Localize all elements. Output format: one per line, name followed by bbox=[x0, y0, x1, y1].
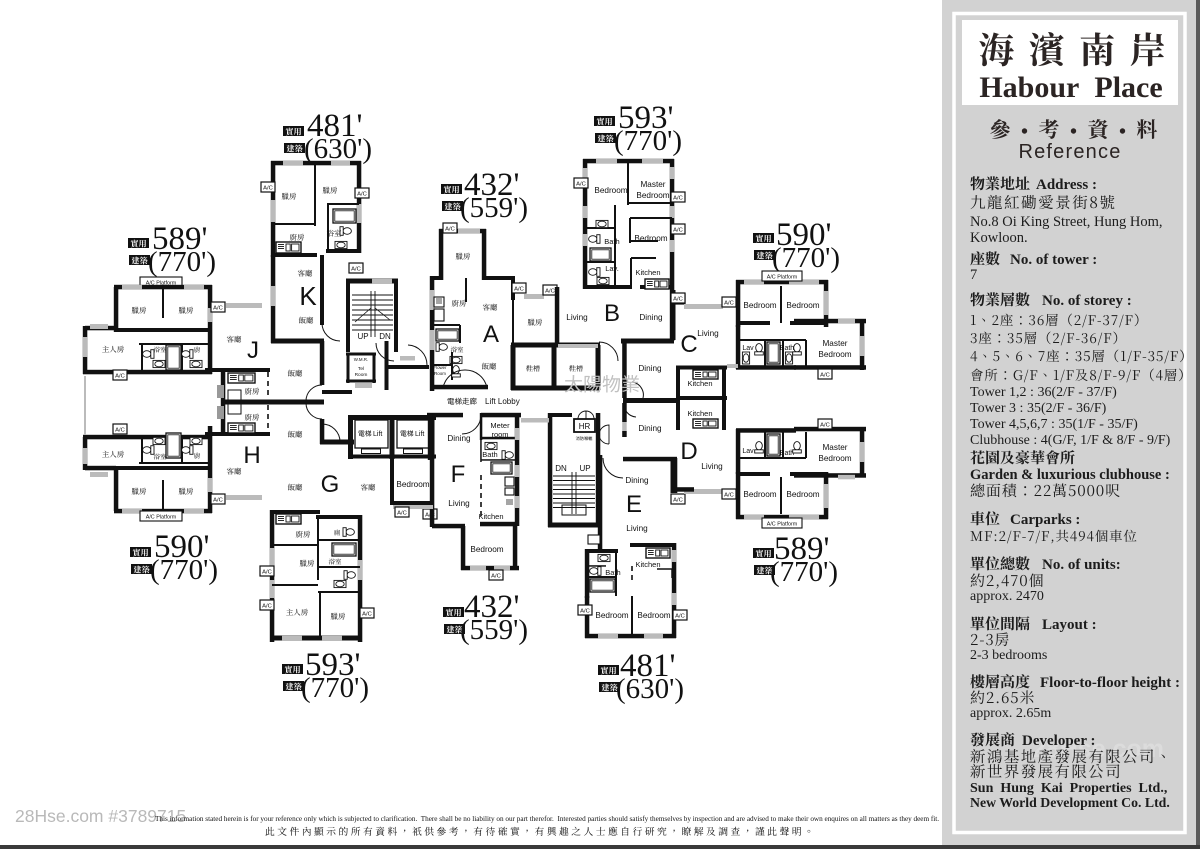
svg-text:J: J bbox=[247, 337, 259, 364]
svg-text:A/C: A/C bbox=[115, 373, 125, 379]
svg-text:approx. 2470: approx. 2470 bbox=[970, 589, 1044, 604]
svg-text:A/C: A/C bbox=[445, 226, 455, 232]
svg-text:Living: Living bbox=[697, 329, 719, 338]
svg-text:2-3 bedrooms: 2-3 bedrooms bbox=[970, 648, 1047, 663]
svg-text:Dining: Dining bbox=[638, 364, 662, 373]
svg-text:A/C: A/C bbox=[675, 613, 685, 619]
svg-text:Bedroom: Bedroom bbox=[743, 490, 776, 499]
svg-text:Lav.: Lav. bbox=[605, 264, 619, 273]
svg-text:No.8 Oi King Street, Hung Hom,: No.8 Oi King Street, Hung Hom, bbox=[970, 214, 1163, 230]
svg-text:D: D bbox=[680, 438, 697, 465]
svg-text:Master: Master bbox=[822, 339, 847, 348]
svg-text:(770'): (770') bbox=[150, 554, 218, 586]
svg-text:Master: Master bbox=[822, 443, 847, 452]
svg-text:room: room bbox=[491, 430, 508, 439]
svg-text:A/C: A/C bbox=[491, 573, 501, 579]
svg-text:Dining: Dining bbox=[639, 313, 663, 322]
svg-text:(630'): (630') bbox=[616, 673, 684, 705]
svg-text:A/C: A/C bbox=[820, 372, 830, 378]
svg-text:A/C: A/C bbox=[213, 497, 223, 503]
svg-text:Bath: Bath bbox=[482, 450, 497, 459]
svg-text:Room: Room bbox=[355, 372, 368, 378]
svg-text:B: B bbox=[604, 300, 620, 327]
svg-text:(559'): (559') bbox=[460, 614, 528, 646]
svg-text:Bath: Bath bbox=[780, 345, 795, 352]
svg-text:Bedroom: Bedroom bbox=[634, 234, 667, 243]
svg-text:A/C: A/C bbox=[357, 191, 367, 197]
svg-text:Kitchen: Kitchen bbox=[687, 409, 712, 418]
svg-text:Lav: Lav bbox=[742, 345, 754, 352]
svg-text:Tel: Tel bbox=[358, 366, 364, 372]
svg-text:A/C: A/C bbox=[673, 195, 683, 201]
svg-text:A/C: A/C bbox=[262, 569, 272, 575]
svg-text:A/C: A/C bbox=[724, 300, 734, 306]
svg-text:Bedroom: Bedroom bbox=[470, 545, 503, 554]
svg-text:7: 7 bbox=[970, 267, 977, 283]
svg-text:A/C: A/C bbox=[362, 611, 372, 617]
svg-text:Sun Hung Kai Properties Lt: Sun Hung Kai Properties Ltd., bbox=[970, 781, 1167, 796]
svg-text:UP: UP bbox=[357, 332, 368, 341]
svg-text:Bedroom: Bedroom bbox=[818, 350, 851, 359]
svg-text:Clubhouse : 4(G/F, 1/F & 8/F -: Clubhouse : 4(G/F, 1/F & 8/F - 9/F) bbox=[970, 433, 1171, 448]
svg-text:Lift: Lift bbox=[373, 431, 382, 438]
svg-text:Living: Living bbox=[626, 524, 648, 533]
svg-text:F: F bbox=[451, 461, 466, 488]
svg-text:Garden & luxurious clubhouse :: Garden & luxurious clubhouse : bbox=[970, 467, 1170, 483]
svg-text:Living: Living bbox=[566, 313, 588, 322]
svg-text:A/C Platform: A/C Platform bbox=[767, 522, 798, 528]
svg-text:This information stated herein: This information stated herein is for yo… bbox=[155, 815, 939, 823]
svg-text:approx. 2.65m: approx. 2.65m bbox=[970, 706, 1051, 721]
svg-text:Room: Room bbox=[434, 371, 446, 376]
svg-text:UP: UP bbox=[579, 464, 590, 473]
svg-text:G: G bbox=[321, 471, 340, 498]
svg-text:H: H bbox=[243, 442, 260, 469]
svg-text:Kitchen: Kitchen bbox=[687, 379, 712, 388]
svg-text:A/C Platform: A/C Platform bbox=[146, 515, 177, 521]
svg-text:(770'): (770') bbox=[772, 242, 840, 274]
svg-text:Carparks :: Carparks : bbox=[1010, 512, 1080, 528]
svg-text:Address :: Address : bbox=[1036, 177, 1097, 193]
svg-text:Bedroom: Bedroom bbox=[636, 191, 669, 200]
svg-text:A/C: A/C bbox=[545, 288, 555, 294]
svg-text:Bedroom: Bedroom bbox=[818, 454, 851, 463]
svg-text:Living: Living bbox=[701, 462, 723, 471]
svg-text:C: C bbox=[680, 331, 697, 358]
svg-text:(770'): (770') bbox=[148, 246, 216, 278]
svg-text:Bedroom: Bedroom bbox=[743, 301, 776, 310]
svg-text:Lift: Lift bbox=[415, 431, 424, 438]
svg-text:Dining: Dining bbox=[447, 434, 471, 443]
svg-text:A: A bbox=[483, 321, 499, 348]
svg-text:A/C: A/C bbox=[673, 296, 683, 302]
svg-text:Reference: Reference bbox=[1018, 141, 1121, 163]
svg-text:A/C: A/C bbox=[351, 266, 361, 272]
svg-text:Bedroom: Bedroom bbox=[396, 480, 429, 489]
svg-text:Master: Master bbox=[640, 180, 665, 189]
svg-text:A/C: A/C bbox=[262, 603, 272, 609]
svg-text:Bedroom: Bedroom bbox=[594, 186, 627, 195]
svg-text:No. of units:: No. of units: bbox=[1042, 557, 1121, 573]
svg-text:K: K bbox=[299, 281, 317, 311]
svg-text:A/C Platform: A/C Platform bbox=[767, 275, 798, 281]
svg-text:Bedroom: Bedroom bbox=[595, 611, 628, 620]
svg-text:No. of storey :: No. of storey : bbox=[1042, 293, 1132, 309]
svg-text:Dining: Dining bbox=[625, 476, 649, 485]
svg-text:Lift Lobby: Lift Lobby bbox=[485, 397, 520, 406]
svg-text:Habour Place: Habour Place bbox=[979, 71, 1162, 104]
svg-text:Dining: Dining bbox=[638, 424, 662, 433]
svg-text:E: E bbox=[626, 491, 642, 518]
svg-text:Living: Living bbox=[448, 499, 470, 508]
svg-text:DN: DN bbox=[555, 464, 567, 473]
svg-text:(770'): (770') bbox=[301, 672, 369, 704]
svg-text:(559'): (559') bbox=[460, 192, 528, 224]
svg-text:A/C: A/C bbox=[397, 510, 407, 516]
svg-text:No. of tower :: No. of tower : bbox=[1010, 252, 1097, 268]
svg-text:A/C: A/C bbox=[673, 227, 683, 233]
svg-text:Bedroom: Bedroom bbox=[786, 490, 819, 499]
svg-text:Floor-to-floor height :: Floor-to-floor height : bbox=[1040, 675, 1180, 691]
svg-text:Kitchen: Kitchen bbox=[635, 268, 660, 277]
svg-text:Meter: Meter bbox=[490, 421, 510, 430]
svg-text:Bath: Bath bbox=[605, 568, 620, 577]
svg-text:Flower: Flower bbox=[433, 365, 447, 370]
svg-text:Kitchen: Kitchen bbox=[635, 560, 660, 569]
svg-text:A/C: A/C bbox=[263, 185, 273, 191]
svg-text:A/C: A/C bbox=[673, 497, 683, 503]
svg-text:Bath: Bath bbox=[780, 450, 795, 457]
svg-text:Kitchen: Kitchen bbox=[478, 512, 503, 521]
svg-text:A/C: A/C bbox=[514, 286, 524, 292]
svg-text:Layout :: Layout : bbox=[1042, 617, 1097, 633]
svg-text:New World Development Co. Ltd.: New World Development Co. Ltd. bbox=[970, 795, 1170, 810]
svg-text:Tower 1,2 : 36(2/F - 37/F): Tower 1,2 : 36(2/F - 37/F) bbox=[970, 385, 1117, 400]
svg-text:(770'): (770') bbox=[614, 125, 682, 157]
svg-text:A/C: A/C bbox=[724, 492, 734, 498]
svg-text:Tower 4,5,6,7 : 35(1/F - 35/F): Tower 4,5,6,7 : 35(1/F - 35/F) bbox=[970, 417, 1138, 432]
svg-text:A/C: A/C bbox=[213, 305, 223, 311]
svg-text:(770'): (770') bbox=[770, 556, 838, 588]
svg-text:Bedroom: Bedroom bbox=[786, 301, 819, 310]
svg-text:(630'): (630') bbox=[304, 133, 372, 165]
svg-text:Kowloon.: Kowloon. bbox=[970, 230, 1028, 246]
svg-text:HR: HR bbox=[579, 422, 591, 431]
svg-text:DN: DN bbox=[379, 332, 391, 341]
svg-text:W.M.R.: W.M.R. bbox=[354, 357, 368, 362]
svg-text:Developer :: Developer : bbox=[1022, 733, 1095, 749]
svg-text:A/C: A/C bbox=[115, 427, 125, 433]
svg-text:A/C: A/C bbox=[576, 181, 586, 187]
svg-text:Bath: Bath bbox=[604, 237, 619, 246]
svg-text:Bedroom: Bedroom bbox=[637, 611, 670, 620]
svg-text:A/C: A/C bbox=[580, 608, 590, 614]
svg-text:Tower 3 : 35(2/F - 36/F): Tower 3 : 35(2/F - 36/F) bbox=[970, 401, 1107, 416]
svg-text:Lav: Lav bbox=[742, 448, 754, 455]
svg-text:A/C: A/C bbox=[820, 422, 830, 428]
